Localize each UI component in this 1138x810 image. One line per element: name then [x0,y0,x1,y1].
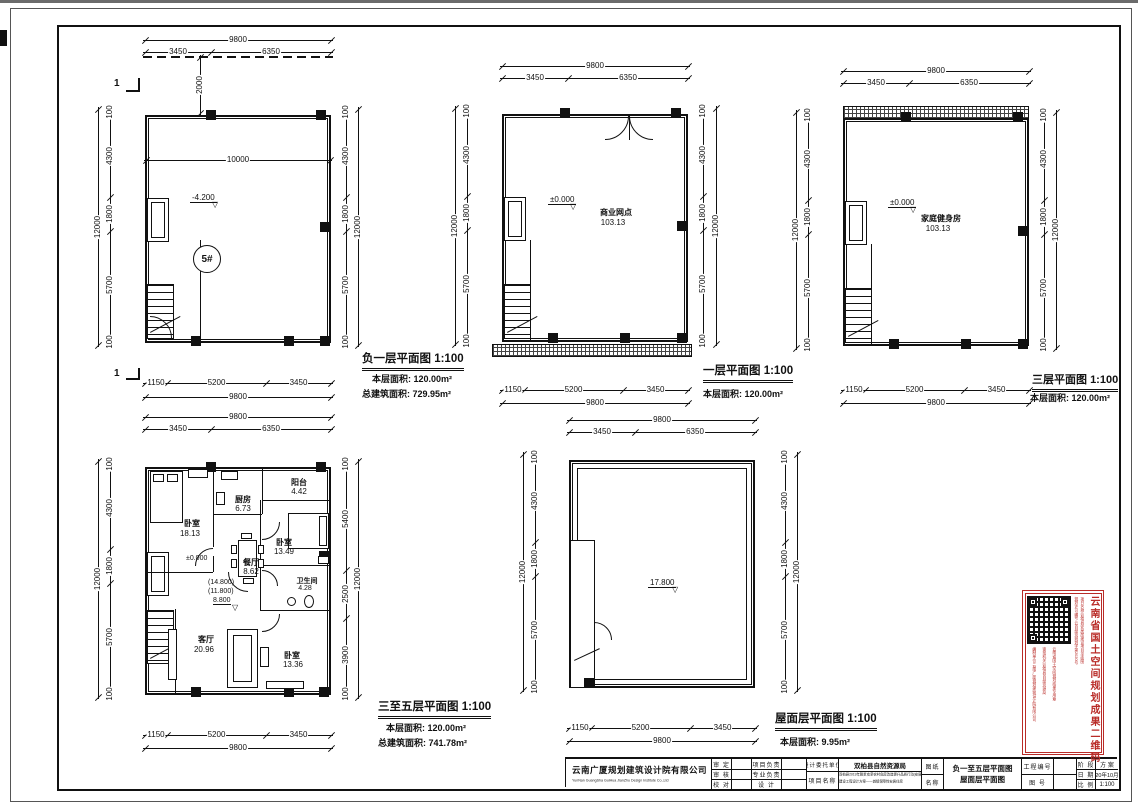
roof-parapet-line [577,468,747,680]
dim-label: 1800 [804,207,812,227]
plan-scale: 1:100 [764,365,793,377]
qr-code-icon [1027,596,1071,644]
dim-label: 12000 [712,214,720,238]
room-area: 4.42 [291,487,307,496]
stamp-note: 规划许可编号:云自然资规划字第2020号 [1073,597,1079,746]
furniture [221,471,238,480]
level-triangle-icon: ▽ [672,586,678,594]
section-mark-1-top: 1 [114,78,120,89]
sheet-label-2: 名称 [921,774,943,789]
typical-level-2: (11.800) [208,588,234,595]
dim-label: 12000 [94,567,102,591]
edge-artifact [0,30,7,46]
elevator-symbol [845,201,867,245]
level-triangle-icon: ▽ [570,203,576,211]
dim-label: 2500 [342,584,350,604]
level-triangle-icon: ▽ [212,201,218,209]
dim-label: 3450 [592,428,612,436]
dim-label: 12000 [793,560,801,584]
furniture [153,474,164,482]
roof-bulkhead [570,540,595,688]
dim-line [110,459,111,699]
qr-finder-icon [1029,634,1037,642]
area-value: 9.95m² [822,737,851,747]
project-name-line2: 建设工程设计方案——城镇保障性安居住房 [839,779,921,784]
dim-label: 9800 [228,413,248,421]
level-triangle-icon: ▽ [232,604,238,612]
dim-line [703,106,704,346]
site-boundary-dashed-line [143,56,333,58]
plan-scale: 1:100 [847,713,876,725]
toilet-symbol [304,595,314,608]
sheet-name-line2: 屋面层平面图 [960,774,1005,785]
interior-wall [213,514,262,515]
plan-scale: 1:100 [462,701,491,713]
dim-line [110,107,111,347]
dim-label: 5700 [463,274,471,294]
interior-wall [530,240,531,342]
typical-floor-area: 本层面积: 120.00m² [386,721,466,734]
dim-label: 4300 [531,491,539,511]
basin-symbol [287,597,296,606]
dim-label: 3450 [646,386,666,394]
planning-approval-stamp: 云南省国土空间规划成果二维码 规划许可编号:云自然资规划字第2020号 项目名称… [1022,590,1104,755]
third-floor-area: 本层面积: 120.00m² [1030,391,1110,404]
dim-label: 9800 [228,393,248,401]
total-label: 总建筑面积: [378,738,426,748]
column [206,110,216,120]
third-room-name: 家庭健身房 [921,213,961,224]
plan-title-text: 三至五层平面图 [378,701,459,713]
project-no-value [1053,759,1076,774]
room-area: 20.96 [194,645,214,654]
dim-label: 100 [699,103,707,118]
building-number-badge: 5# [193,245,221,273]
dim-label: 5700 [781,620,789,640]
column [901,112,911,122]
furniture [319,516,327,546]
section-line [138,368,140,380]
dim-label: 100 [342,686,350,701]
dim-label: 5700 [106,275,114,295]
dim-label: 4300 [106,498,114,518]
dim-line [535,452,536,692]
dim-label: 5200 [905,386,925,394]
project-label: 项目名称 [806,771,838,789]
dim-label: 6350 [685,428,705,436]
dim-label: 1800 [531,549,539,569]
column [961,339,971,349]
role-label-2: 专业负责 [751,769,781,779]
plan-title-text: 负一层平面图 [362,353,431,365]
dim-label: 4300 [342,146,350,166]
column [584,678,594,688]
interior-wall [871,244,872,346]
column [620,333,630,343]
area-label: 本层面积: [386,723,425,733]
area-value: 120.00m² [428,723,467,733]
dim-label: 5700 [106,627,114,647]
dim-label: 100 [1040,337,1048,352]
role-value-2 [781,769,806,779]
room-name: 客厅 [198,634,214,645]
column [316,462,326,472]
dim-label: 12000 [451,214,459,238]
pavement-hatch [492,344,692,357]
sign-value-3 [731,779,751,789]
first-room-area: 103.13 [601,218,625,227]
typical-level-zero: ±0.000 [186,555,207,562]
elevator-symbol [147,552,169,596]
role-label-3: 设 计 [751,779,781,789]
qr-finder-icon [1029,598,1037,606]
dim-label: 3450 [866,79,886,87]
dim-label: 1800 [106,204,114,224]
room-area: 8.62 [243,567,259,576]
column [677,221,687,231]
section-line [138,78,140,92]
sign-label-2: 审 核 [711,769,731,779]
area-value: 120.00m² [745,389,784,399]
stamp-title: 云南省国土空间规划成果二维码 [1086,596,1101,749]
dim-label: 1800 [781,549,789,569]
furniture [233,635,252,682]
dim-label: 100 [531,679,539,694]
stamp-note: 审批机关:双柏县自然资源局 [1041,647,1047,752]
dim-label: 5200 [207,731,227,739]
stamp-note: 项目名称:双柏县安居房建设项目平面图 [1079,597,1085,746]
dim-label: 3450 [168,48,188,56]
first-plan-title: 一层平面图 1:100 [703,362,793,381]
dim-label: 9800 [228,36,248,44]
area-value: 120.00m² [1072,393,1111,403]
plan-scale: 1:100 [434,353,463,365]
dim-label: 6350 [618,74,638,82]
drawing-no-label: 图 号 [1021,774,1053,789]
basement-plan-title: 负一层平面图 1:100 [362,350,464,369]
dim-label: 12000 [1052,218,1060,242]
column [677,333,687,343]
dim-label: 5700 [1040,278,1048,298]
dim-label: 10000 [226,156,250,164]
dim-label: 6350 [261,425,281,433]
interior-wall [260,565,331,566]
room-area: 13.49 [274,547,294,556]
role-value-3 [781,779,806,789]
scale-label: 比 例 [1076,779,1095,789]
column [320,336,330,346]
dim-line [467,106,468,346]
furniture [260,647,269,667]
dim-label: 100 [1040,107,1048,122]
area-label: 本层面积: [780,737,819,747]
dim-label: 6350 [959,79,979,87]
dim-label: 100 [781,449,789,464]
typical-total-area: 总建筑面积: 741.78m² [378,736,467,749]
dim-label: 100 [463,333,471,348]
dim-label: 9800 [652,737,672,745]
sheet-name: 负一至五层平面图 屋面层平面图 [943,759,1021,789]
total-value: 741.78m² [429,738,468,748]
dim-label: 1800 [342,204,350,224]
column [316,110,326,120]
dim-label: 5700 [804,278,812,298]
dim-label: 100 [804,107,812,122]
stamp-note: 编制单位:云南广厦规划建筑设计院有限公司 [1031,647,1037,752]
room-area: 6.73 [235,504,251,513]
client-label: 设计委托单位 [806,759,838,771]
dim-label: 4300 [699,145,707,165]
dim-label: 12000 [354,215,362,239]
sign-value-1 [731,759,751,769]
plan-scale: 1:100 [1090,374,1118,386]
date-label: 日 期 [1076,769,1095,779]
dim-label: 9800 [585,399,605,407]
typical-level-3: 8.800 [213,597,231,605]
interior-wall [260,610,331,611]
dim-label: 100 [106,104,114,119]
section-mark-1-bottom: 1 [114,368,120,379]
furniture [243,578,254,584]
dim-label: 3900 [342,645,350,665]
dim-label: 3450 [525,74,545,82]
dim-label: 1800 [463,203,471,223]
room-area: 18.13 [180,529,200,538]
dim-label: 6350 [261,48,281,56]
dim-label: 4300 [463,145,471,165]
dim-label: 4300 [1040,149,1048,169]
dim-label: 100 [531,449,539,464]
dim-label: 100 [781,679,789,694]
area-label: 本层面积: [372,374,411,384]
client-name: 双柏县自然资源局 [838,759,921,771]
level-triangle-icon: ▽ [910,206,916,214]
first-room-name: 商业网点 [600,207,632,218]
dim-label: 9800 [585,62,605,70]
column [191,687,201,697]
roof-floor-area: 本层面积: 9.95m² [780,735,850,748]
dim-label: 5700 [699,274,707,294]
dim-label: 100 [106,456,114,471]
interior-wall [262,467,263,514]
dim-label: 9800 [652,416,672,424]
dim-label: 2000 [196,75,204,95]
dim-label: 100 [463,103,471,118]
column [320,222,330,232]
column [889,339,899,349]
dim-label: 100 [106,686,114,701]
dim-label: 5200 [564,386,584,394]
role-value-1 [781,759,806,769]
dim-label: 12000 [94,215,102,239]
area-label: 本层面积: [1030,393,1069,403]
interior-wall [147,572,213,573]
furniture [231,545,237,554]
third-plan-title: 三层平面图 1:100 [1032,371,1118,390]
dim-label: 12000 [519,560,527,584]
dim-label: 1150 [570,724,589,732]
dim-label: 12000 [792,218,800,242]
dim-label: 9800 [926,67,946,75]
furniture [188,469,208,478]
dim-label: 5700 [531,620,539,640]
dim-label: 1150 [503,386,522,394]
dim-line [785,452,786,692]
company-cell: 云南广厦规划建筑设计院有限公司 YunNan GuangSha GuiHua J… [566,759,711,789]
column [1018,226,1028,236]
dim-label: 4300 [106,146,114,166]
column [319,687,329,697]
screen-edge [0,0,1138,3]
stamp-note: 云南省国土空间规划成果专用章 [1051,647,1057,752]
column [671,108,681,118]
total-label: 总建筑面积: [362,389,410,399]
dim-label: 4300 [781,491,789,511]
dim-label: 5700 [342,275,350,295]
interior-wall [213,467,214,547]
dim-label: 5200 [207,379,227,387]
dim-label: 3450 [289,731,309,739]
third-room-area: 103.13 [926,224,950,233]
interior-wall [260,500,261,610]
room-area: 4.28 [298,585,312,592]
plan-title-text: 一层平面图 [703,365,761,377]
elevator-symbol [147,198,169,242]
plan-title-text: 三层平面图 [1032,374,1087,386]
column [284,336,294,346]
plan-title-text: 屋面层平面图 [775,713,844,725]
column [548,333,558,343]
dim-label: 100 [342,104,350,119]
typical-plan-title: 三至五层平面图 1:100 [378,698,491,717]
scale-value: 1:100 [1095,779,1118,789]
dim-label: 1150 [146,731,165,739]
dim-label: 4300 [804,149,812,169]
furniture [266,681,304,689]
basement-floor-area: 本层面积: 120.00m² [372,372,452,385]
dim-label: 100 [342,334,350,349]
interior-wall [262,500,331,501]
dim-label: 1800 [1040,207,1048,227]
title-block: 云南广厦规划建筑设计院有限公司 YunNan GuangSha GuiHua J… [565,757,1117,787]
role-label-1: 项目负责 [751,759,781,769]
column [1013,112,1023,122]
column [560,108,570,118]
dim-line [808,110,809,350]
dim-line [1044,110,1045,350]
dim-label: 9800 [228,744,248,752]
furniture [258,545,264,554]
dim-label: 5200 [631,724,651,732]
roof-plan-title: 屋面层平面图 1:100 [775,710,877,729]
dim-label: 1800 [106,556,114,576]
sign-label-1: 审 定 [711,759,731,769]
canopy-hatch [843,106,1029,119]
dim-label: 3450 [289,379,309,387]
furniture [168,629,177,680]
area-value: 120.00m² [414,374,453,384]
project-name-line1: 双柏县2019年脱贫攻坚农村危房改造提升品质行动(安居房)建设项目 [839,772,921,777]
company-name-en: YunNan GuangSha GuiHua JianZhu Design In… [572,778,668,782]
furniture [167,474,178,482]
typical-level-1: (14.800) [208,579,234,586]
project-no-label: 工程编号 [1021,759,1053,774]
sign-label-3: 校 对 [711,779,731,789]
furniture [216,492,225,505]
dim-label: 5400 [342,509,350,529]
dim-label: 9800 [926,399,946,407]
dim-label: 100 [699,333,707,348]
dim-label: 1150 [844,386,863,394]
date-value: 20年10月 [1095,769,1118,779]
sheet-label-1: 图纸 [921,759,943,774]
total-value: 729.95m² [413,389,452,399]
project-name: 双柏县2019年脱贫攻坚农村危房改造提升品质行动(安居房)建设项目 建设工程设计… [838,771,921,789]
dim-label: 3450 [168,425,188,433]
dim-label: 3450 [987,386,1007,394]
area-label: 本层面积: [703,389,742,399]
first-floor-area: 本层面积: 120.00m² [703,387,783,400]
furniture [318,556,329,564]
dim-label: 100 [106,334,114,349]
dim-label: 3450 [713,724,733,732]
dim-line [346,107,347,347]
dim-label: 100 [342,456,350,471]
room-name: 卧室 [184,518,200,529]
drawing-no-value [1053,774,1076,789]
dim-label: 1800 [699,203,707,223]
elevator-symbol [504,197,526,241]
company-name-cn: 云南广厦规划建筑设计院有限公司 [572,764,711,776]
sheet-name-line1: 负一至五层平面图 [953,763,1013,774]
room-area: 13.36 [283,660,303,669]
dim-label: 1150 [146,379,165,387]
furniture [231,559,237,568]
sign-value-2 [731,769,751,779]
drawing-sheet: 9800345063501150520034509800100430018005… [0,0,1138,810]
dim-label: 100 [804,337,812,352]
column [1018,339,1028,349]
furniture [241,533,252,539]
dim-label: 12000 [354,567,362,591]
building-number: 5# [201,254,212,265]
qr-finder-icon [1061,598,1069,606]
interior-wall [213,556,214,572]
basement-total-area: 总建筑面积: 729.95m² [362,387,451,400]
